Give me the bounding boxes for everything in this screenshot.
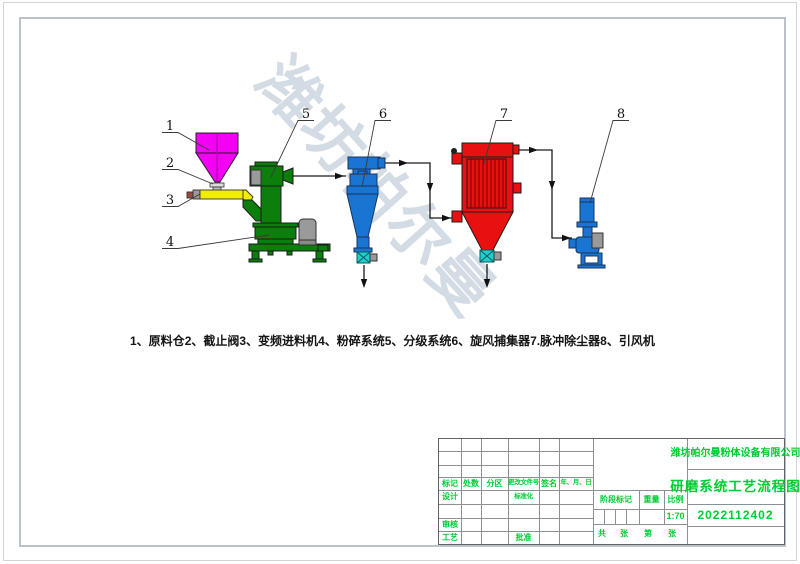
legend-item: 4、粉碎系统 — [318, 332, 385, 349]
tb-sheet2-label: 张 — [663, 524, 681, 544]
legend-item: 7.脉冲除尘器 — [530, 332, 600, 349]
tb-check-label: 审核 — [439, 518, 461, 531]
legend-item: 2、截止阀 — [185, 332, 240, 349]
flow-pipes — [293, 150, 572, 284]
arrow-icon — [361, 279, 367, 288]
arrow-icon — [549, 181, 555, 190]
tb-drawing-title: 研磨系统工艺流程图 — [687, 469, 784, 504]
pulse-dust-collector — [452, 143, 522, 262]
legend-item: 5、分级系统 — [385, 332, 452, 349]
tb-total-label: 共 — [593, 524, 611, 544]
arrow-icon — [335, 173, 344, 179]
arrow-icon — [399, 160, 408, 166]
tb-standardize-label: 标准化 — [508, 490, 539, 504]
cyclone-collector — [347, 157, 385, 263]
pipe-cyclone-to-collector — [380, 163, 459, 218]
tb-weight-label: 重量 — [639, 490, 664, 509]
tb-stage-mark-label: 阶段标记 — [593, 490, 639, 509]
mill-column — [261, 186, 281, 225]
legend-item: 8、引风机 — [600, 332, 655, 349]
tb-sign-label: 签名 — [539, 477, 559, 490]
callout-numbers: 1 2 3 4 5 6 7 8 — [166, 107, 625, 250]
callout-2: 2 — [166, 156, 174, 171]
tb-drawing-number: 2022112402 — [687, 504, 784, 526]
tb-scale-value: 1:70 — [664, 509, 687, 524]
arrow-icon — [442, 215, 451, 221]
callout-4: 4 — [166, 235, 174, 250]
tb-zone-label: 分区 — [481, 477, 508, 490]
arrow-icon — [529, 147, 538, 153]
mill-lower — [258, 239, 293, 244]
tb-sheet1-label: 张 — [615, 524, 633, 544]
crushing-system-mill — [243, 162, 330, 262]
drawing-sheet: 潍坊帕尔曼 — [0, 0, 800, 564]
tb-count-label: 处数 — [461, 477, 481, 490]
tb-date-label: 年、月、日 — [559, 477, 593, 490]
cyclone-rotary-valve — [357, 252, 377, 263]
legend-item: 6、旋风捕集器 — [451, 332, 530, 349]
classifier-outlet-horn — [283, 168, 293, 184]
induced-draft-fan — [569, 198, 605, 268]
callout-6: 6 — [379, 107, 387, 122]
raw-material-hopper — [196, 133, 238, 182]
fan-motor — [592, 233, 603, 248]
legend-item: 1、原料仓 — [130, 332, 185, 349]
tb-change-no-label: 更改文件号 — [508, 477, 539, 490]
arrow-icon — [484, 279, 490, 288]
pipe-collector-to-fan — [518, 150, 572, 238]
callout-5: 5 — [302, 107, 310, 122]
title-block: 标记 处数 分区 更改文件号 签名 年、月、日 设计 标准化 审核 工艺 批准 … — [438, 438, 785, 545]
tb-process-label: 工艺 — [439, 531, 461, 544]
callout-1: 1 — [166, 119, 174, 134]
callout-3: 3 — [166, 193, 174, 208]
callout-7: 7 — [500, 107, 508, 122]
arrow-icon — [427, 183, 433, 192]
tb-mark-label: 标记 — [439, 477, 461, 490]
tb-approve-label: 批准 — [508, 531, 539, 544]
mill-body — [255, 227, 296, 239]
mill-flange — [253, 223, 298, 227]
tb-design-label: 设计 — [439, 490, 461, 504]
legend-item: 3、变频进料机 — [239, 332, 318, 349]
legend: 1、原料仓 2、截止阀 3、变频进料机 4、粉碎系统 5、分级系统 6、旋风捕集… — [130, 332, 620, 349]
tb-company-name: 潍坊帕尔曼粉体设备有限公司 — [687, 441, 784, 467]
classifier-motor — [251, 170, 261, 185]
tb-page-label: 第 — [639, 524, 657, 544]
callout-8: 8 — [617, 107, 625, 122]
collector-rotary-valve — [480, 250, 501, 262]
